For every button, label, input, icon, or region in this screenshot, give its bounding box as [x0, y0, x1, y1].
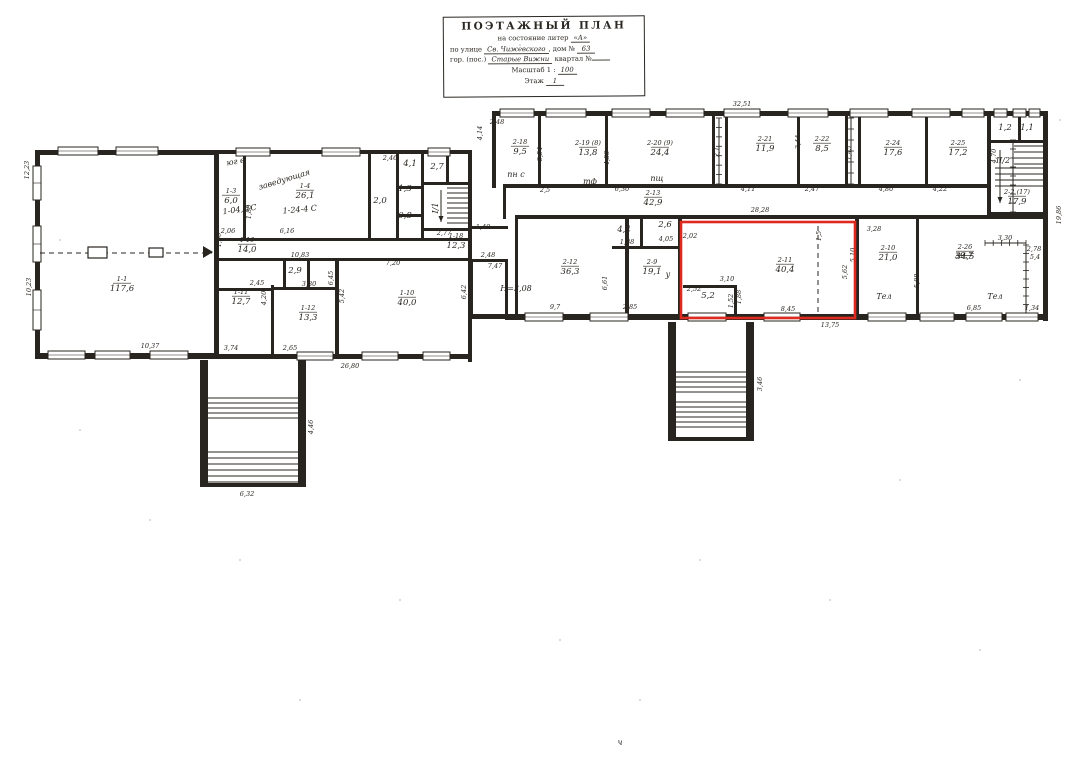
room-number: 1-10: [400, 289, 415, 297]
room-number: 2-19 (8): [574, 139, 601, 147]
room-number: 1-16: [240, 236, 255, 244]
handwritten-note: Тел: [987, 292, 1002, 301]
room-area: 17,9: [1008, 197, 1028, 207]
room-area: 1,3: [398, 184, 412, 194]
scanned-floor-plan-page: 1-1117,61-36,01-426,11-1614,01-1812,31-1…: [0, 0, 1081, 766]
block-value: [592, 60, 610, 61]
floor-label: Этаж: [524, 77, 543, 85]
dimension-label: 2,45: [249, 279, 264, 287]
city-value: Старые Вижни: [488, 55, 552, 64]
state-label: на состояние литер: [498, 34, 569, 42]
room-area: 1,1: [1020, 123, 1034, 133]
room-number: 1-1: [117, 275, 127, 283]
stair-direction-arrow: [439, 216, 444, 222]
dimension-label: 2,47: [804, 185, 820, 193]
dimension-label: 4,22: [932, 185, 947, 193]
dimension-label: 8,45: [781, 305, 795, 313]
dimension-label: 7,47: [488, 262, 503, 270]
scale-label: Масштаб 1 :: [511, 66, 555, 74]
page-title: ПОЭТАЖНЫЙ ПЛАН: [450, 19, 638, 32]
room-number: 2-21: [757, 135, 773, 143]
room-area: 117,6: [110, 284, 135, 294]
room-number: 1-12: [301, 304, 316, 312]
dimension-label: 2,9: [1004, 212, 1015, 220]
dimension-label: 32,51: [733, 100, 752, 108]
room-area: 4,4: [616, 225, 631, 235]
handwritten-note: юг в: [226, 155, 246, 167]
room-number: 1-3: [226, 187, 236, 195]
dimension-label: 19,86: [1055, 206, 1063, 225]
dimension-label: 2,46: [382, 154, 397, 162]
house-value: 63: [577, 44, 595, 53]
paper-speck: [899, 479, 901, 481]
dimension-label: 3,46: [756, 377, 764, 391]
room-area: 2,9: [287, 266, 302, 276]
dimension-label: 5,88: [913, 274, 921, 288]
dimension-label: 6,32: [240, 490, 254, 498]
room-area: 11,9: [756, 144, 776, 154]
dimension-label: 1,34: [1025, 304, 1039, 312]
room-area: 14,0: [238, 245, 258, 255]
dimension-label: 26,80: [340, 362, 360, 370]
floor-value: 1: [546, 77, 564, 86]
room-area: 1,2: [998, 123, 1012, 133]
dimension-label: 6,16: [280, 227, 294, 235]
room-area: 24,4: [650, 148, 670, 158]
room-area: 13,3: [299, 313, 318, 323]
room-area: 36,3: [561, 267, 580, 277]
handwritten-note: I/1: [431, 203, 440, 215]
dimension-label: 10,37: [141, 342, 160, 350]
handwritten-note: пн с: [507, 170, 525, 179]
house-label: , дом №: [548, 44, 575, 52]
room-area: 42,9: [643, 198, 664, 208]
dimension-label: 4,80: [878, 185, 893, 193]
dimension-label: 6,61: [601, 276, 609, 290]
dimension-label: 28,28: [750, 206, 770, 214]
room-area: 9,5: [513, 147, 527, 157]
dimension-label: 2,1: [713, 147, 721, 158]
dimension-label: 4,05: [658, 235, 673, 243]
room-area: 26,1: [295, 191, 315, 201]
room-area: 2,7: [429, 162, 444, 172]
paper-speck: [299, 699, 301, 701]
room-number: 2-13: [645, 189, 661, 197]
dimension-label: 1,88: [620, 238, 634, 246]
dimension-label: 10,23: [25, 278, 33, 297]
dimension-label: 5,42: [338, 289, 346, 303]
dimension-label: 4,11: [740, 185, 755, 193]
dimension-label: 2,65: [282, 344, 297, 352]
dimension-label: 2,5: [539, 186, 550, 194]
dimension-label: 6,45: [327, 271, 335, 285]
room-number: 2-26: [957, 243, 973, 251]
city-label: гор. (пос.): [450, 56, 486, 64]
dimension-label: 4,14: [476, 126, 484, 141]
dimension-label: 1,5: [815, 231, 823, 241]
dimension-label: 1,50: [215, 233, 223, 247]
title-block: ПОЭТАЖНЫЙ ПЛАН на состояние литер «А» по…: [443, 15, 646, 97]
street-label: по улице: [450, 45, 482, 53]
paper-speck: [149, 519, 151, 521]
dimension-label: 4,88: [603, 151, 611, 166]
scale-value: 100: [558, 66, 577, 75]
dimension-label: 3,74: [224, 344, 238, 352]
paper-speck: [1059, 119, 1061, 121]
handwritten-note: у: [665, 270, 671, 279]
dimension-label: 6,85: [967, 304, 981, 312]
dimension-label: 4,46: [307, 420, 315, 435]
room-area: 4,1: [402, 159, 417, 169]
handwritten-note: II/2: [995, 156, 1010, 165]
paper-speck: [559, 639, 561, 641]
dimension-label: 3,54: [536, 147, 544, 161]
room-number: 2-20 (9): [646, 139, 673, 147]
room-area: 19,1: [643, 267, 662, 277]
room-area: 8,5: [815, 144, 829, 154]
handwritten-note: Н=3,08: [499, 284, 532, 293]
room-area: 0,8: [398, 211, 412, 221]
room-area: 5,2: [701, 291, 715, 301]
dimension-label: 2,78: [1026, 245, 1041, 253]
dimension-label: 6,42: [460, 285, 468, 299]
specks-layer: [59, 44, 1061, 701]
paper-speck: [979, 649, 981, 651]
paper-speck: [829, 599, 831, 601]
room-area: 21,0: [878, 253, 899, 263]
dimension-label: 1,52: [727, 294, 735, 308]
room-area: 40,0: [397, 298, 418, 308]
room-number: 1-11: [234, 288, 249, 296]
dimension-label: 3,28: [867, 225, 881, 233]
handwritten-note: пщ: [650, 174, 663, 183]
dimension-label: 3,44: [794, 135, 802, 149]
dimension-label: 4,20: [260, 291, 268, 306]
room-number: 2-24: [885, 139, 901, 147]
dimension-label: 1,88: [735, 290, 743, 304]
block-label: квартал №: [555, 55, 592, 63]
dimension-label: 2,52: [686, 285, 701, 293]
paper-speck: [59, 239, 61, 241]
room-area: 40,4: [775, 265, 795, 275]
room-number: 2-10: [880, 244, 896, 252]
dimension-label: 10,83: [291, 251, 310, 259]
dimension-label: 2,48: [480, 251, 495, 259]
room-number: 2-22: [814, 135, 830, 143]
floor-plan-svg: 1-1117,61-36,01-426,11-1614,01-1812,31-1…: [0, 0, 1081, 766]
highlight-layer: [681, 222, 855, 318]
room-area: 2,6: [657, 220, 672, 230]
state-value: «А»: [571, 33, 591, 42]
room-number: 2-18: [512, 138, 528, 146]
paper-speck: [399, 599, 401, 601]
paper-speck: [639, 699, 641, 701]
dimension-label: 2,48: [489, 118, 504, 126]
room-number: 2-9: [646, 258, 657, 266]
room-number: 2-12: [562, 258, 578, 266]
stair-direction-arrow: [998, 197, 1003, 203]
room-area: 13,8: [579, 148, 599, 158]
dimension-label: 6,30: [615, 185, 629, 193]
paper-speck: [699, 559, 701, 561]
paper-speck: [1019, 379, 1021, 381]
room-number: 2-11: [777, 256, 793, 264]
pier-symbol: [149, 248, 163, 257]
dimension-label: 7,20: [386, 259, 400, 267]
walls-layer: [35, 111, 1048, 487]
dimension-label: 9,7: [550, 303, 561, 311]
handwritten-note: ч: [618, 738, 623, 747]
handwritten-note: Тел: [876, 292, 891, 301]
dimension-label: 5,4: [1030, 253, 1040, 261]
room-number: 2-2 (17): [1003, 188, 1030, 196]
room-area: 12,3: [447, 241, 466, 251]
room-area: 17,6: [884, 148, 904, 158]
room-number: 2-25: [950, 139, 966, 147]
handwritten-note: тф: [583, 177, 597, 186]
room-area: 2,0: [372, 196, 387, 206]
room-area: 17,2: [949, 148, 968, 158]
dimension-label: 3,10: [720, 275, 734, 283]
paper-speck: [239, 559, 241, 561]
labels-layer: 1-1117,61-36,01-426,11-1614,01-1812,31-1…: [23, 100, 1063, 747]
dimension-label: 2,02: [682, 232, 697, 240]
dimension-label: 3,30: [998, 234, 1012, 242]
dimension-label: 13,75: [821, 321, 840, 329]
paper-speck: [79, 429, 81, 431]
dimension-label: 2,77: [436, 229, 452, 237]
highlighted-room-outline: [681, 222, 855, 318]
dimension-label: 12,23: [23, 161, 31, 180]
dimension-label: 3,80: [302, 280, 316, 288]
dimension-label: 1,40: [476, 223, 490, 231]
pier-symbol: [88, 247, 107, 258]
door-symbol: [203, 246, 213, 258]
dimension-label: 5,62: [841, 265, 849, 279]
dimension-label: 2,85: [622, 303, 637, 311]
handwritten-note: 1-24-4 С: [282, 204, 317, 216]
room-number: 1-4: [300, 182, 310, 190]
street-value: Св. Чижевского: [484, 45, 548, 54]
room-area: 12,7: [232, 297, 252, 307]
dimension-label: 1,45: [845, 146, 853, 160]
